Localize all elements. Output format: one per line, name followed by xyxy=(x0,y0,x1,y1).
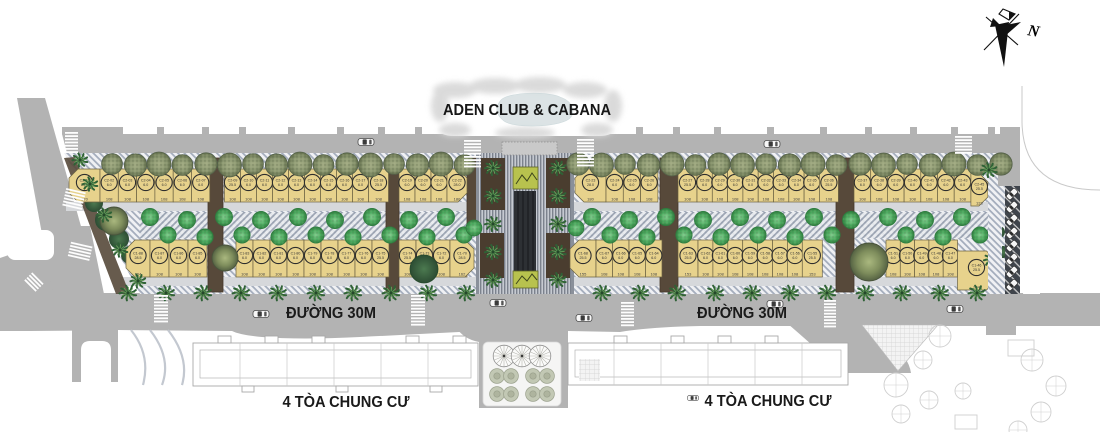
svg-text:C2-12: C2-12 xyxy=(276,178,286,182)
svg-text:108: 108 xyxy=(156,272,163,277)
svg-text:C2-42: C2-42 xyxy=(941,178,951,182)
svg-text:6.0: 6.0 xyxy=(439,256,444,260)
svg-text:108: 108 xyxy=(634,272,641,277)
svg-text:C1-64: C1-64 xyxy=(649,251,659,255)
svg-text:28.0: 28.0 xyxy=(454,183,461,187)
svg-text:C2-14: C2-14 xyxy=(308,178,318,182)
svg-text:C2-37: C2-37 xyxy=(858,178,868,182)
svg-text:C1-57: C1-57 xyxy=(775,251,785,255)
svg-text:108: 108 xyxy=(258,272,265,277)
svg-text:6.0: 6.0 xyxy=(763,256,768,260)
svg-text:6.0: 6.0 xyxy=(618,256,623,260)
svg-text:108: 108 xyxy=(763,197,770,202)
svg-text:108: 108 xyxy=(732,197,739,202)
svg-text:4 TÒA CHUNG CƯ: 4 TÒA CHUNG CƯ xyxy=(705,392,832,410)
svg-text:C2-11: C2-11 xyxy=(260,178,270,182)
svg-text:108: 108 xyxy=(959,197,966,202)
svg-text:6.0: 6.0 xyxy=(157,256,162,260)
svg-text:ĐƯỜNG 30M: ĐƯỜNG 30M xyxy=(697,304,787,322)
svg-text:C2-43: C2-43 xyxy=(958,178,968,182)
svg-text:6.0: 6.0 xyxy=(635,256,640,260)
svg-text:6.0: 6.0 xyxy=(437,183,442,187)
svg-text:108: 108 xyxy=(197,197,204,202)
svg-text:6.0: 6.0 xyxy=(327,256,332,260)
svg-text:6.0: 6.0 xyxy=(748,183,753,187)
svg-text:C2-41: C2-41 xyxy=(924,178,934,182)
svg-text:6.0: 6.0 xyxy=(629,183,634,187)
svg-text:6.0: 6.0 xyxy=(779,183,784,187)
svg-text:C1-60: C1-60 xyxy=(730,251,740,255)
svg-text:108: 108 xyxy=(277,197,284,202)
svg-text:C1-47: C1-47 xyxy=(946,251,956,255)
svg-text:25.5: 25.5 xyxy=(377,256,384,260)
svg-text:25.5: 25.5 xyxy=(684,183,691,187)
svg-text:6.0: 6.0 xyxy=(326,183,331,187)
svg-text:6.0: 6.0 xyxy=(893,183,898,187)
svg-text:C2-23: C2-23 xyxy=(586,178,596,182)
svg-text:ADEN CLUB & CABANA: ADEN CLUB & CABANA xyxy=(443,102,611,119)
svg-text:6.0: 6.0 xyxy=(778,256,783,260)
svg-text:108: 108 xyxy=(892,197,899,202)
svg-text:C1-65: C1-65 xyxy=(632,251,642,255)
svg-text:C1-63: C1-63 xyxy=(683,251,693,255)
svg-text:6.0: 6.0 xyxy=(246,183,251,187)
svg-text:108: 108 xyxy=(611,197,618,202)
svg-text:25.5: 25.5 xyxy=(825,183,832,187)
svg-text:4 TÒA CHUNG CƯ: 4 TÒA CHUNG CƯ xyxy=(283,393,410,411)
svg-text:6.0: 6.0 xyxy=(717,183,722,187)
svg-text:C1-86: C1-86 xyxy=(174,251,184,255)
svg-text:C1-55: C1-55 xyxy=(807,251,817,255)
svg-text:C1-87: C1-87 xyxy=(155,251,165,255)
svg-text:108: 108 xyxy=(161,197,168,202)
svg-text:6.0: 6.0 xyxy=(647,183,652,187)
svg-text:C1-67: C1-67 xyxy=(599,251,609,255)
svg-text:6.0: 6.0 xyxy=(960,183,965,187)
svg-text:C1-49: C1-49 xyxy=(917,251,927,255)
svg-text:C2-21: C2-21 xyxy=(434,178,444,182)
svg-text:C2-27: C2-27 xyxy=(683,178,693,182)
svg-text:C1-80: C1-80 xyxy=(291,251,301,255)
svg-text:108: 108 xyxy=(629,197,636,202)
svg-text:6.0: 6.0 xyxy=(702,183,707,187)
svg-text:108: 108 xyxy=(890,272,897,277)
svg-text:C2-31: C2-31 xyxy=(746,178,756,182)
svg-text:6.0: 6.0 xyxy=(176,256,181,260)
svg-text:C2-34: C2-34 xyxy=(792,178,802,182)
svg-text:6.0: 6.0 xyxy=(794,183,799,187)
svg-text:C2-19: C2-19 xyxy=(402,178,412,182)
svg-text:108: 108 xyxy=(325,197,332,202)
svg-text:C1-66: C1-66 xyxy=(616,251,626,255)
svg-text:108: 108 xyxy=(876,197,883,202)
svg-text:C2-24: C2-24 xyxy=(610,178,620,182)
svg-text:108: 108 xyxy=(793,197,800,202)
svg-text:6.0: 6.0 xyxy=(718,256,723,260)
svg-text:C1-77: C1-77 xyxy=(342,251,352,255)
svg-text:6.0: 6.0 xyxy=(919,256,924,260)
svg-text:C2-30: C2-30 xyxy=(730,178,740,182)
svg-text:108: 108 xyxy=(341,197,348,202)
svg-text:108: 108 xyxy=(650,272,657,277)
svg-text:6.0: 6.0 xyxy=(294,183,299,187)
svg-text:108: 108 xyxy=(918,272,925,277)
svg-text:C1-78: C1-78 xyxy=(325,251,335,255)
svg-text:180: 180 xyxy=(454,197,461,202)
svg-text:C2-36: C2-36 xyxy=(824,178,834,182)
svg-text:C2-35: C2-35 xyxy=(807,178,817,182)
svg-text:28.0: 28.0 xyxy=(587,183,594,187)
svg-text:25.5: 25.5 xyxy=(809,256,816,260)
svg-text:C1-51: C1-51 xyxy=(888,251,898,255)
svg-text:108: 108 xyxy=(717,197,724,202)
svg-text:C2-38: C2-38 xyxy=(874,178,884,182)
svg-text:C2-39: C2-39 xyxy=(891,178,901,182)
svg-text:ĐƯỜNG 30M: ĐƯỜNG 30M xyxy=(286,304,376,322)
svg-text:25.5: 25.5 xyxy=(404,256,411,260)
svg-text:108: 108 xyxy=(826,197,833,202)
svg-text:108: 108 xyxy=(326,272,333,277)
svg-text:25.5: 25.5 xyxy=(976,187,983,191)
svg-text:C1-48: C1-48 xyxy=(931,251,941,255)
svg-text:C2-25: C2-25 xyxy=(627,178,637,182)
svg-text:C2-05: C2-05 xyxy=(159,178,169,182)
svg-text:6.0: 6.0 xyxy=(143,183,148,187)
svg-text:108: 108 xyxy=(357,197,364,202)
svg-text:C2-17: C2-17 xyxy=(356,178,366,182)
svg-text:108: 108 xyxy=(377,272,384,277)
svg-text:6.0: 6.0 xyxy=(927,183,932,187)
svg-text:108: 108 xyxy=(124,197,131,202)
svg-text:C1-50: C1-50 xyxy=(903,251,913,255)
svg-text:108: 108 xyxy=(926,197,933,202)
svg-text:6.0: 6.0 xyxy=(891,256,896,260)
svg-text:6.0: 6.0 xyxy=(763,183,768,187)
svg-text:25.5: 25.5 xyxy=(580,256,587,260)
svg-text:6.0: 6.0 xyxy=(125,183,130,187)
svg-text:6.0: 6.0 xyxy=(107,183,112,187)
svg-text:C2-28: C2-28 xyxy=(700,178,710,182)
svg-text:6.0: 6.0 xyxy=(421,183,426,187)
svg-text:108: 108 xyxy=(261,197,268,202)
svg-text:C1-46: C1-46 xyxy=(972,263,982,267)
svg-text:6.0: 6.0 xyxy=(809,183,814,187)
svg-text:108: 108 xyxy=(684,197,691,202)
svg-text:108: 108 xyxy=(142,197,149,202)
svg-text:C2-18: C2-18 xyxy=(374,178,384,182)
svg-text:108: 108 xyxy=(947,272,954,277)
svg-text:108: 108 xyxy=(909,197,916,202)
svg-text:108: 108 xyxy=(275,272,282,277)
svg-text:6.0: 6.0 xyxy=(293,256,298,260)
svg-text:C2-33: C2-33 xyxy=(776,178,786,182)
svg-text:108: 108 xyxy=(732,272,739,277)
svg-text:C2-02: C2-02 xyxy=(104,178,114,182)
svg-text:6.0: 6.0 xyxy=(612,183,617,187)
svg-text:108: 108 xyxy=(194,272,201,277)
svg-text:6.0: 6.0 xyxy=(342,183,347,187)
svg-text:108: 108 xyxy=(179,197,186,202)
svg-text:C1-72: C1-72 xyxy=(437,251,447,255)
svg-text:153: 153 xyxy=(685,272,692,277)
svg-text:C1-82: C1-82 xyxy=(257,251,267,255)
svg-text:108: 108 xyxy=(717,272,724,277)
svg-text:108: 108 xyxy=(404,197,411,202)
svg-text:108: 108 xyxy=(617,272,624,277)
svg-text:C2-15: C2-15 xyxy=(324,178,334,182)
svg-text:108: 108 xyxy=(293,197,300,202)
svg-text:C2-29: C2-29 xyxy=(715,178,725,182)
svg-text:6.0: 6.0 xyxy=(405,183,410,187)
svg-text:C2-45: C2-45 xyxy=(975,182,985,186)
svg-text:6.0: 6.0 xyxy=(162,183,167,187)
svg-text:28.5: 28.5 xyxy=(135,256,142,260)
svg-text:108: 108 xyxy=(175,272,182,277)
svg-text:C1-74: C1-74 xyxy=(403,251,413,255)
svg-text:25.5: 25.5 xyxy=(685,256,692,260)
svg-text:6.0: 6.0 xyxy=(361,256,366,260)
svg-text:6.0: 6.0 xyxy=(733,256,738,260)
svg-text:108: 108 xyxy=(762,272,769,277)
svg-text:108: 108 xyxy=(701,197,708,202)
svg-text:6.0: 6.0 xyxy=(259,256,264,260)
svg-text:108: 108 xyxy=(646,197,653,202)
svg-text:25.5: 25.5 xyxy=(229,183,236,187)
svg-text:6.0: 6.0 xyxy=(242,256,247,260)
svg-text:C1-83: C1-83 xyxy=(240,251,250,255)
svg-text:C2-16: C2-16 xyxy=(340,178,350,182)
svg-text:6.0: 6.0 xyxy=(602,256,607,260)
svg-text:108: 108 xyxy=(601,272,608,277)
svg-text:6.0: 6.0 xyxy=(310,183,315,187)
svg-text:C1-79: C1-79 xyxy=(308,251,318,255)
svg-text:162: 162 xyxy=(459,272,466,277)
svg-text:108: 108 xyxy=(292,272,299,277)
svg-text:C1-68: C1-68 xyxy=(578,251,588,255)
svg-text:123: 123 xyxy=(976,201,983,206)
svg-text:C1-56: C1-56 xyxy=(790,251,800,255)
svg-text:C2-09: C2-09 xyxy=(228,178,238,182)
svg-text:108: 108 xyxy=(904,272,911,277)
svg-text:C1-58: C1-58 xyxy=(760,251,770,255)
svg-text:C2-22: C2-22 xyxy=(452,178,462,182)
svg-text:108: 108 xyxy=(375,197,382,202)
svg-text:6.0: 6.0 xyxy=(195,256,200,260)
svg-text:6.0: 6.0 xyxy=(860,183,865,187)
svg-text:6.0: 6.0 xyxy=(180,183,185,187)
svg-text:108: 108 xyxy=(792,272,799,277)
svg-text:108: 108 xyxy=(309,197,316,202)
svg-text:C2-07: C2-07 xyxy=(196,178,206,182)
svg-text:108: 108 xyxy=(420,197,427,202)
svg-text:C1-70: C1-70 xyxy=(457,251,467,255)
svg-text:C1-62: C1-62 xyxy=(701,251,711,255)
svg-text:108: 108 xyxy=(943,197,950,202)
svg-text:6.0: 6.0 xyxy=(934,256,939,260)
svg-text:108: 108 xyxy=(229,197,236,202)
svg-text:C1-85: C1-85 xyxy=(193,251,203,255)
svg-text:153: 153 xyxy=(809,272,816,277)
svg-text:C2-04: C2-04 xyxy=(141,178,151,182)
svg-text:108: 108 xyxy=(747,272,754,277)
svg-text:C2-20: C2-20 xyxy=(418,178,428,182)
svg-text:6.0: 6.0 xyxy=(198,183,203,187)
svg-text:108: 108 xyxy=(933,272,940,277)
svg-text:25.5: 25.5 xyxy=(375,183,382,187)
svg-text:C1-59: C1-59 xyxy=(745,251,755,255)
svg-text:108: 108 xyxy=(747,197,754,202)
svg-text:108: 108 xyxy=(343,272,350,277)
svg-text:C2-32: C2-32 xyxy=(761,178,771,182)
svg-text:108: 108 xyxy=(702,272,709,277)
svg-text:C1-76: C1-76 xyxy=(359,251,369,255)
svg-text:6.0: 6.0 xyxy=(344,256,349,260)
svg-text:6.0: 6.0 xyxy=(278,183,283,187)
svg-text:108: 108 xyxy=(106,197,113,202)
svg-text:6.0: 6.0 xyxy=(310,256,315,260)
svg-text:C2-26: C2-26 xyxy=(644,178,654,182)
svg-text:108: 108 xyxy=(859,197,866,202)
svg-text:108: 108 xyxy=(241,272,248,277)
svg-text:C1-75: C1-75 xyxy=(376,251,386,255)
svg-text:6.0: 6.0 xyxy=(262,183,267,187)
svg-text:6.0: 6.0 xyxy=(877,183,882,187)
svg-text:108: 108 xyxy=(438,272,445,277)
svg-text:C2-10: C2-10 xyxy=(244,178,254,182)
svg-text:6.0: 6.0 xyxy=(276,256,281,260)
svg-text:C2-13: C2-13 xyxy=(292,178,302,182)
svg-text:108: 108 xyxy=(360,272,367,277)
svg-text:C2-06: C2-06 xyxy=(177,178,187,182)
svg-text:C1-88: C1-88 xyxy=(133,251,143,255)
svg-text:C1-61: C1-61 xyxy=(716,251,726,255)
svg-text:6.0: 6.0 xyxy=(651,256,656,260)
svg-text:6.0: 6.0 xyxy=(948,256,953,260)
svg-text:6.0: 6.0 xyxy=(703,256,708,260)
svg-text:6.0: 6.0 xyxy=(943,183,948,187)
svg-text:108: 108 xyxy=(245,197,252,202)
svg-text:28.5: 28.5 xyxy=(459,256,466,260)
svg-text:6.0: 6.0 xyxy=(733,183,738,187)
svg-text:180: 180 xyxy=(587,197,594,202)
svg-text:6.0: 6.0 xyxy=(792,256,797,260)
svg-text:25.5: 25.5 xyxy=(973,268,980,272)
svg-text:108: 108 xyxy=(309,272,316,277)
svg-text:6.0: 6.0 xyxy=(910,183,915,187)
svg-text:C1-81: C1-81 xyxy=(274,251,284,255)
svg-text:C2-40: C2-40 xyxy=(908,178,918,182)
svg-text:C2-03: C2-03 xyxy=(123,178,133,182)
svg-text:108: 108 xyxy=(808,197,815,202)
svg-text:108: 108 xyxy=(778,197,785,202)
svg-text:6.0: 6.0 xyxy=(358,183,363,187)
svg-text:155: 155 xyxy=(580,272,587,277)
svg-text:6.0: 6.0 xyxy=(748,256,753,260)
svg-text:6.0: 6.0 xyxy=(905,256,910,260)
svg-text:108: 108 xyxy=(777,272,784,277)
svg-text:108: 108 xyxy=(436,197,443,202)
